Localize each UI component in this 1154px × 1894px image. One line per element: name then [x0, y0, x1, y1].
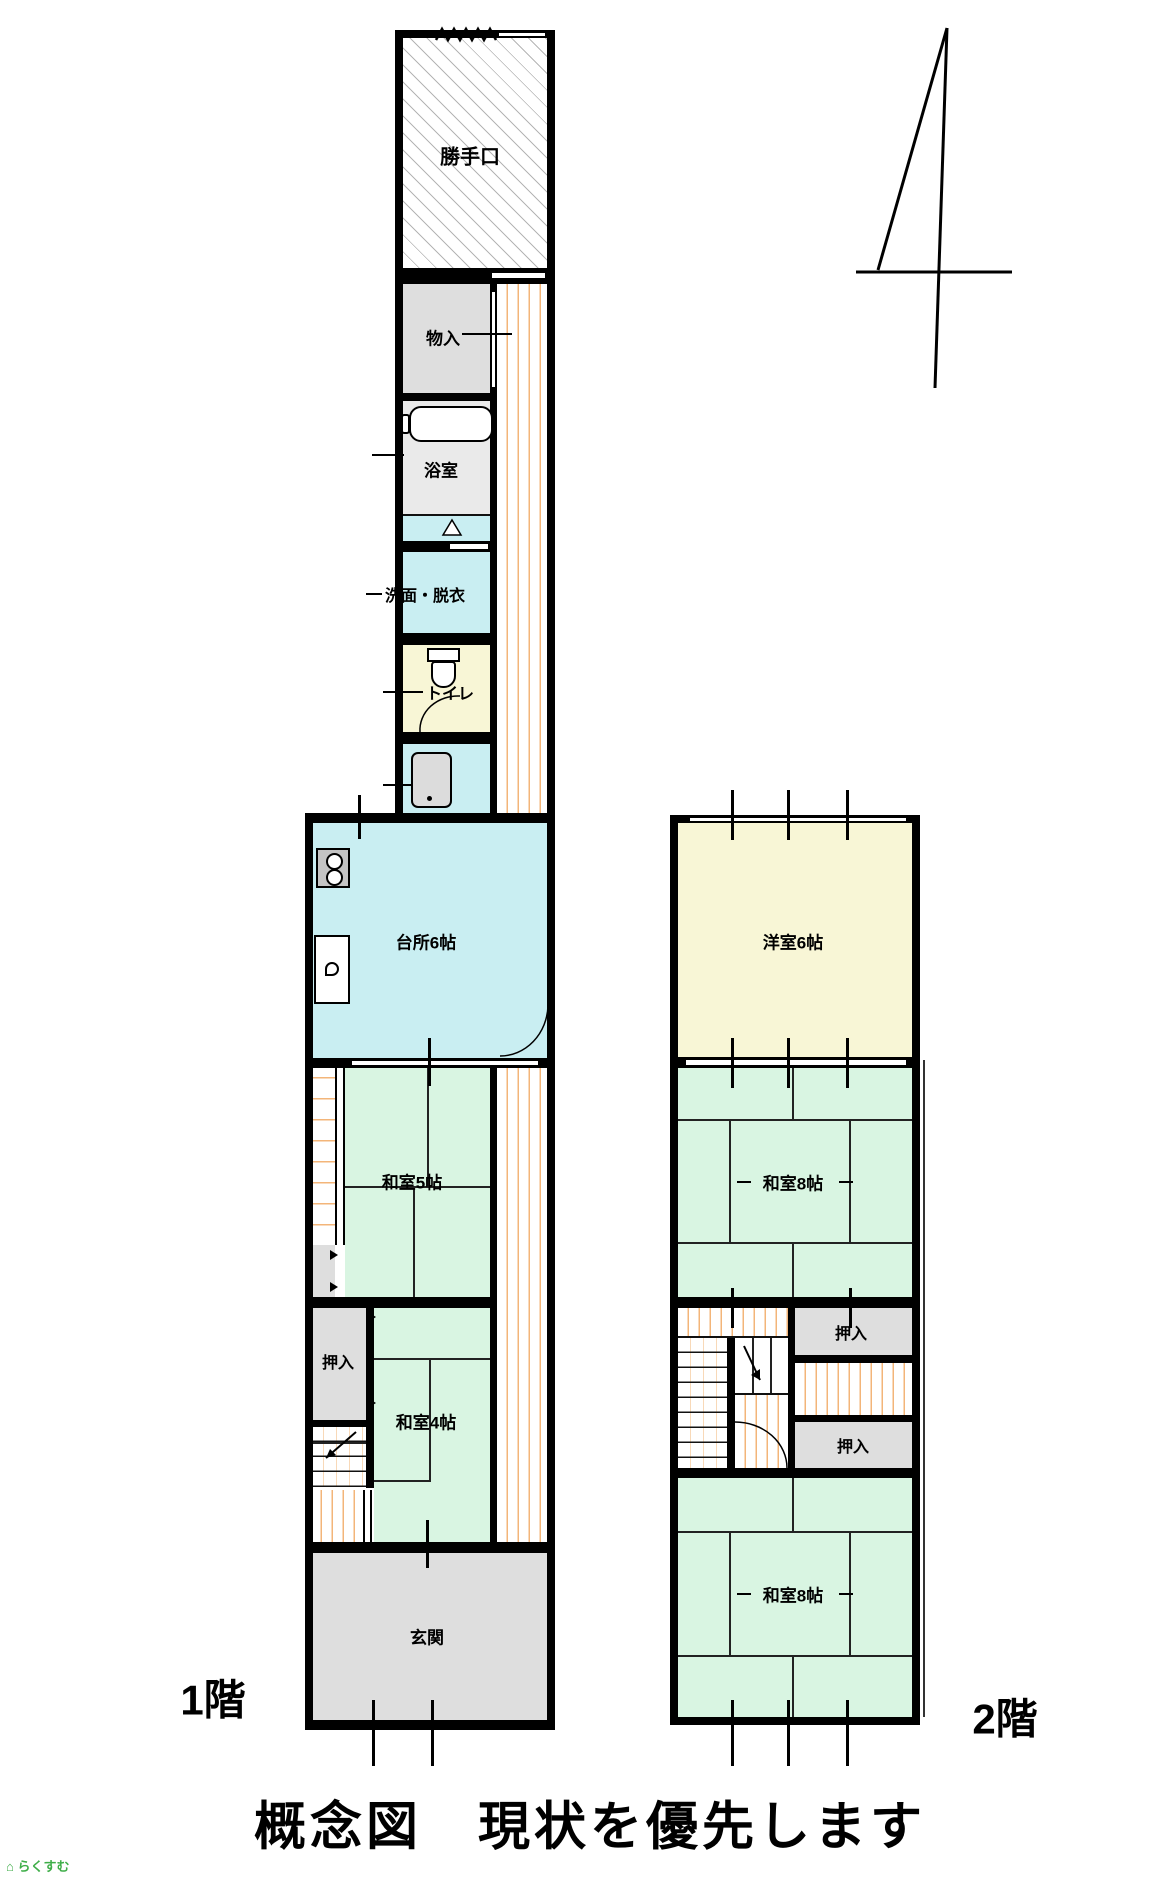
stairs-2f: [678, 1338, 727, 1468]
tatami-line: [792, 1478, 794, 1531]
wall: [490, 1068, 497, 1542]
stove-burner: [326, 853, 343, 870]
dimension-tick: [787, 790, 790, 840]
dimension-tick: [846, 790, 849, 840]
house-logo-icon: ⌂: [6, 1859, 14, 1874]
engawa-sliding-track: [335, 1068, 345, 1245]
dimension-tick: [731, 1288, 734, 1328]
corridor-lower: [497, 1068, 547, 1542]
tatami-line: [678, 1655, 912, 1657]
dimension-line: [923, 1060, 925, 1717]
room-label-washitsu8-lower: 和室8帖: [763, 1582, 823, 1607]
dimension-tick: [358, 795, 361, 839]
room-label-genkan: 玄関: [410, 1624, 444, 1649]
label-leader: [462, 333, 512, 335]
wall: [670, 1717, 920, 1725]
dimension-tick: [846, 1038, 849, 1088]
wall: [795, 1355, 912, 1363]
wall: [670, 815, 678, 1725]
tatami-line: [678, 1531, 912, 1533]
sliding-door: [352, 1061, 538, 1065]
rakusumu-logo: ⌂ らくすむ: [6, 1856, 70, 1875]
tatami-line: [729, 1121, 731, 1242]
label-leader: [383, 784, 411, 786]
dimension-tick: [731, 1038, 734, 1088]
dimension-tick: [787, 1038, 790, 1088]
dimension-tick: [426, 1520, 429, 1568]
wall: [395, 393, 497, 401]
room-label-youshitsu: 洋室6帖: [763, 929, 823, 954]
stairs-arrow-icon: [316, 1428, 360, 1468]
wall: [395, 633, 497, 645]
label-leader: [839, 1181, 853, 1183]
wall: [305, 813, 555, 823]
room-label-oshiire-1f: 押入: [322, 1349, 354, 1373]
stove-burner: [326, 869, 343, 886]
wall: [670, 1468, 920, 1478]
wall: [305, 1542, 555, 1553]
sliding-door: [686, 1060, 906, 1065]
tatami-line: [792, 1657, 794, 1717]
label-leader: [839, 1593, 853, 1595]
tatami-line: [413, 1188, 415, 1297]
label-leader: [383, 691, 423, 693]
wall: [547, 30, 555, 1730]
corridor-upper: [497, 284, 547, 813]
north-arrow-icon: [840, 18, 1030, 398]
door-wedge: [368, 1312, 376, 1322]
floor1-label: 1階: [180, 1667, 245, 1728]
room-label-washitsu5: 和室5帖: [382, 1169, 442, 1194]
tatami-line: [792, 1244, 794, 1297]
washroom-triangle-icon: [441, 518, 463, 538]
label-leader: [372, 454, 404, 456]
label-leader: [366, 593, 382, 595]
tatami-line: [678, 1242, 912, 1244]
dimension-tick: [428, 1038, 431, 1086]
room-label-washitsu4: 和室4帖: [396, 1409, 456, 1434]
window: [690, 818, 906, 821]
dimension-tick: [431, 1700, 434, 1766]
tatami-line: [374, 1358, 490, 1360]
hall-stripe-patch: [311, 1490, 363, 1542]
room-label-katteguchi: 勝手口: [440, 141, 500, 170]
logo-text: らくすむ: [17, 1859, 69, 1874]
page-title: 概念図 現状を優先します: [254, 1785, 926, 1860]
laundry-dot: [427, 796, 432, 801]
dimension-tick: [731, 1700, 734, 1766]
label-leader: [737, 1593, 751, 1595]
engawa-strip: [313, 1068, 335, 1245]
door-wedge: [368, 1398, 376, 1408]
sliding-door: [492, 292, 495, 387]
room-label-senmen: 洗面・脱衣: [385, 582, 465, 606]
wall: [305, 1420, 374, 1427]
dimension-tick: [787, 1700, 790, 1766]
tatami-line: [374, 1480, 431, 1482]
window: [499, 33, 545, 36]
stairs-arrow-icon: [738, 1342, 768, 1388]
kitchen-door-arc-icon: [498, 1004, 550, 1058]
door-gap: [450, 544, 488, 549]
zigzag-boundary-icon: [436, 26, 500, 44]
room-label-oshiire-2f-lower: 押入: [837, 1433, 869, 1457]
room-label-washitsu8-upper: 和室8帖: [763, 1170, 823, 1195]
bathtub-step: [401, 414, 410, 434]
label-leader: [737, 1181, 751, 1183]
stripe-patch-2f: [795, 1363, 912, 1415]
tatami-line: [678, 1119, 912, 1121]
tatami-line: [792, 1068, 794, 1119]
wall: [912, 815, 920, 1725]
wall: [795, 1415, 912, 1422]
dimension-tick: [846, 1700, 849, 1766]
door-arc-icon: [733, 1420, 789, 1470]
toilet-tank-icon: [427, 648, 460, 662]
door-wedge: [330, 1250, 338, 1260]
bathtub-icon: [409, 406, 493, 442]
window: [492, 273, 545, 278]
wall: [305, 813, 313, 1730]
dimension-tick: [731, 790, 734, 840]
hall-sliding-track: [363, 1490, 372, 1542]
wall: [670, 1297, 920, 1308]
floor2-label: 2階: [972, 1686, 1037, 1747]
room-label-toire: トイレ: [426, 680, 474, 704]
room-label-oshiire-2f-upper: 押入: [835, 1320, 867, 1344]
tatami-line: [729, 1533, 731, 1655]
wall: [305, 1297, 497, 1308]
room-label-daidokoro: 台所6帖: [396, 929, 456, 954]
room-label-monoire: 物入: [426, 325, 460, 350]
stair-tread-line: [770, 1338, 772, 1393]
floorplan-page: 勝手口 物入 浴室 洗面・脱衣 トイレ 台所6帖 和室5帖 押入 和室4帖 玄関…: [0, 0, 1154, 1894]
dimension-tick: [372, 1700, 375, 1766]
door-wedge: [330, 1282, 338, 1292]
wall: [305, 1720, 555, 1730]
sink-faucet: [325, 962, 339, 976]
wall: [788, 1308, 795, 1468]
room-label-yokushitsu: 浴室: [424, 457, 458, 482]
